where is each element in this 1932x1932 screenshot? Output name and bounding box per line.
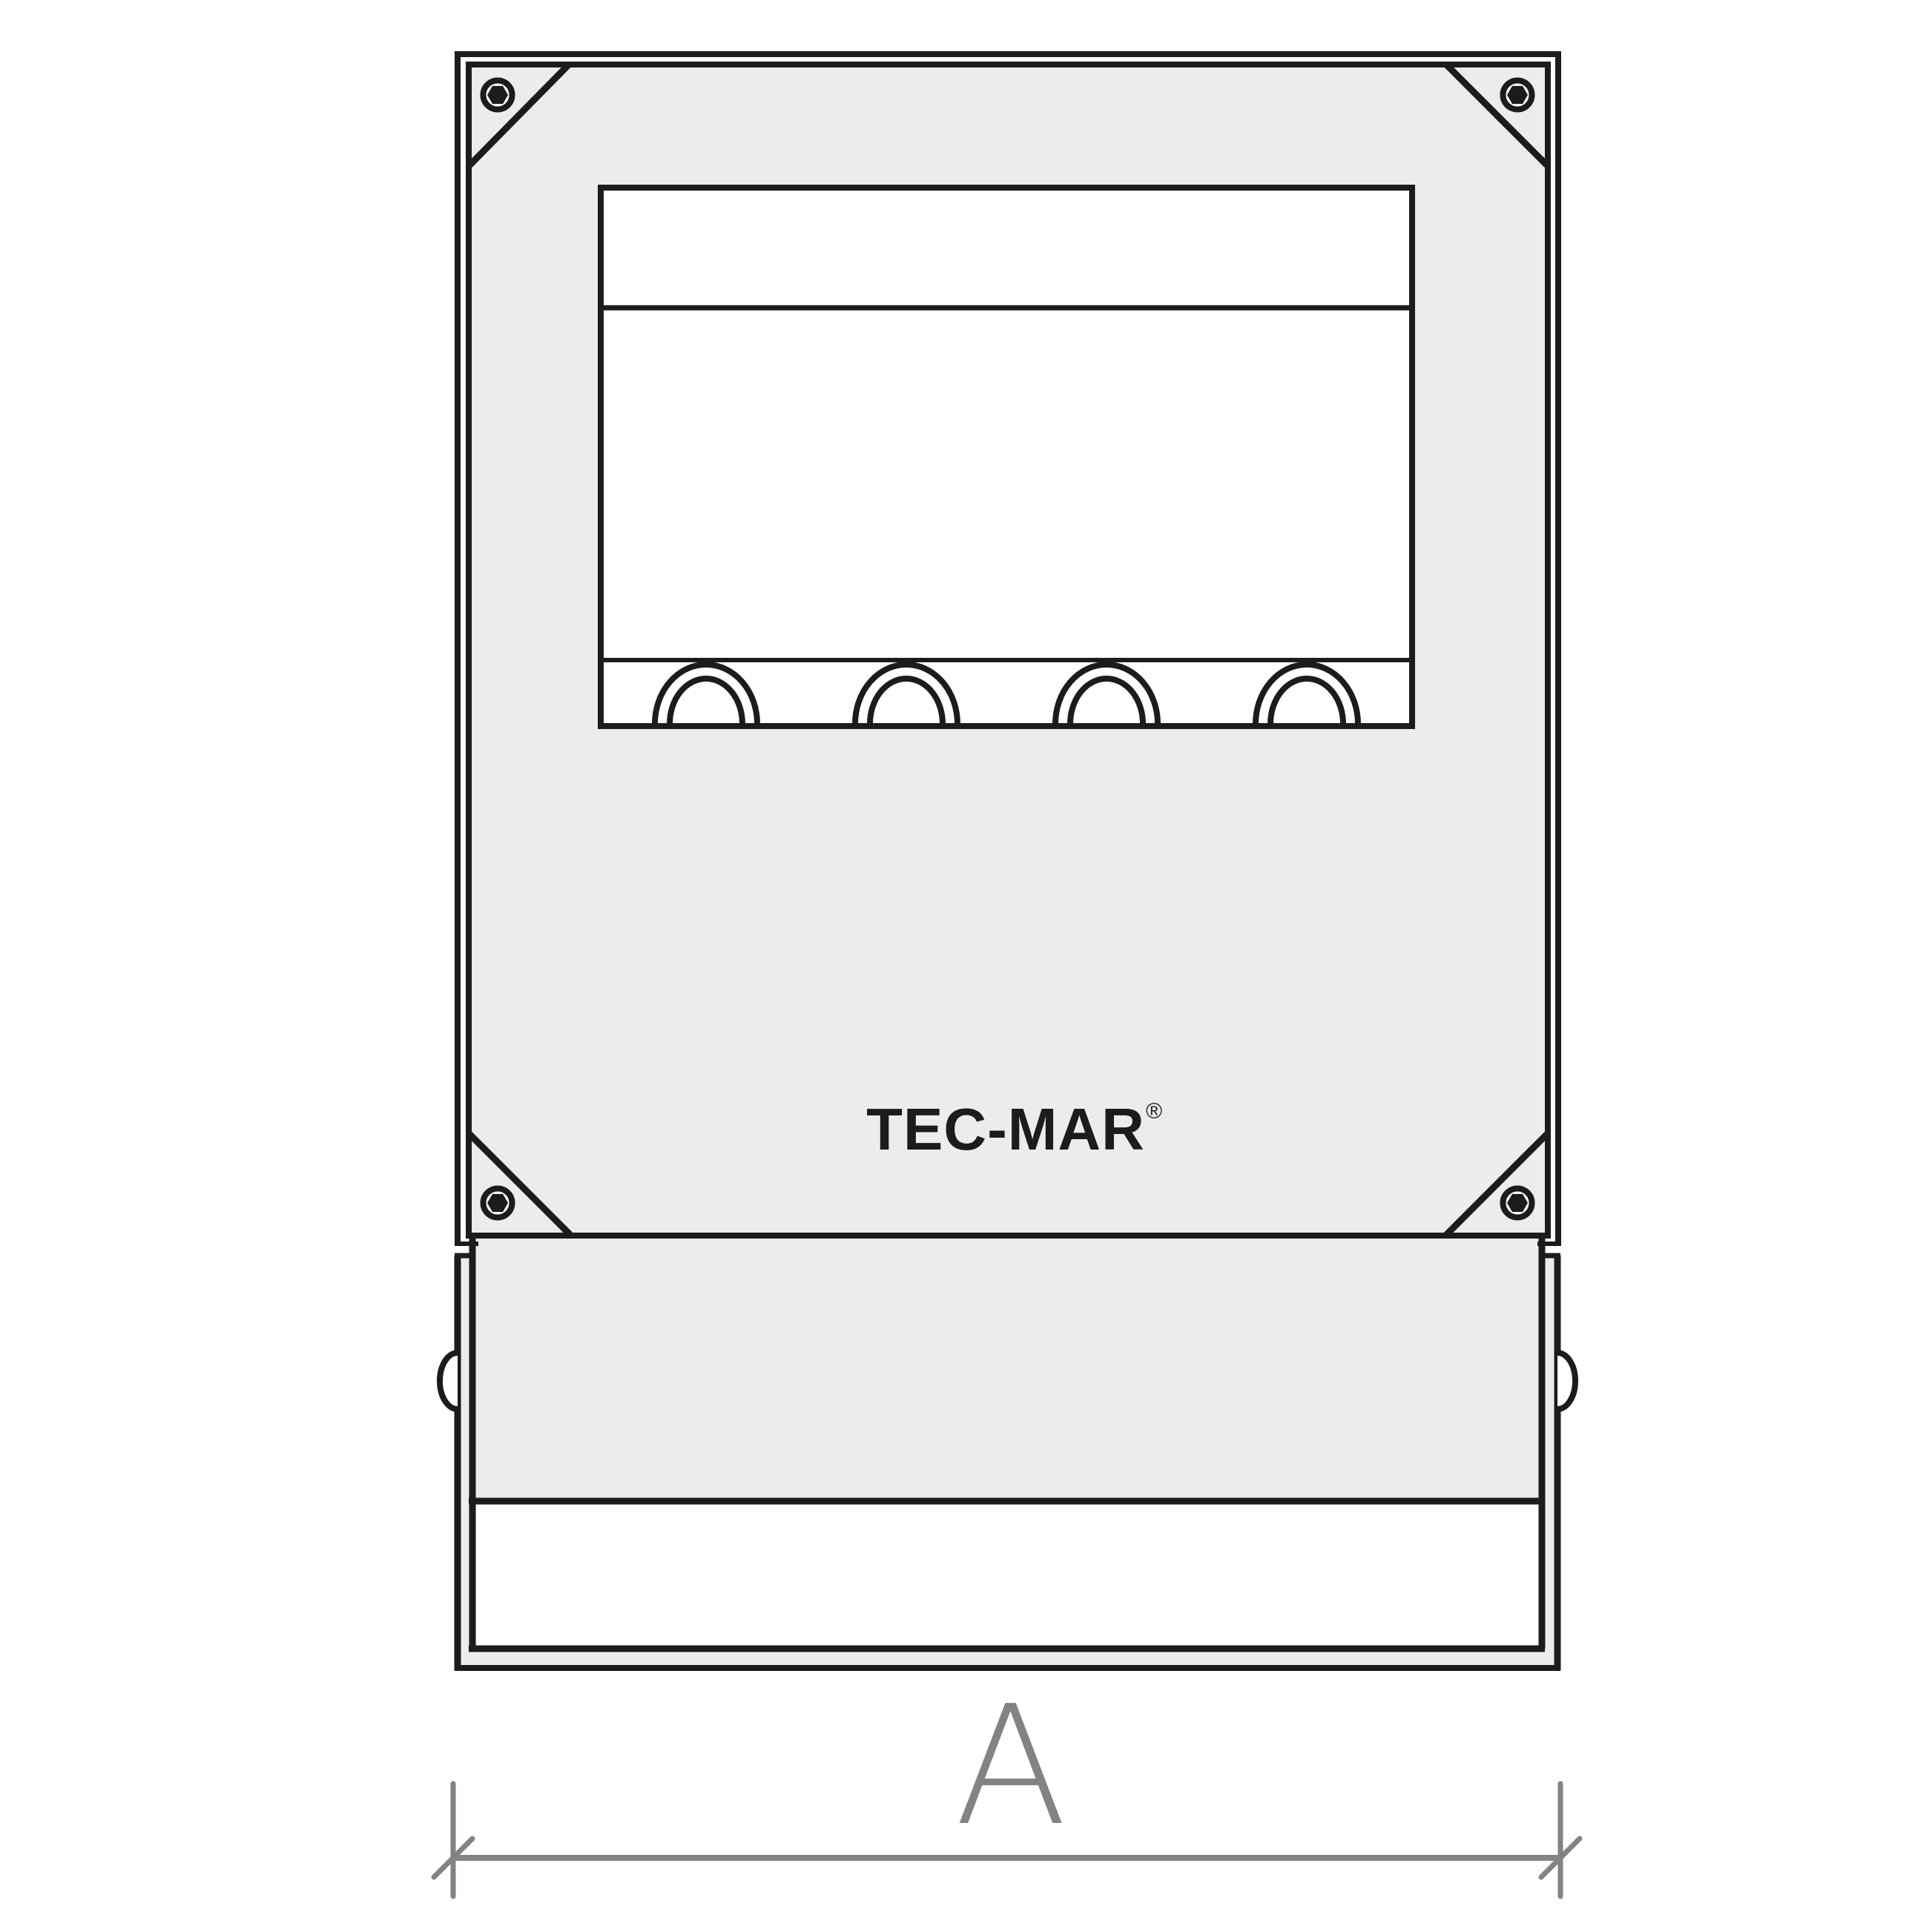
mounting-bracket bbox=[440, 1239, 1575, 1670]
technical-drawing-page: TEC-MAR ® A bbox=[0, 0, 1932, 1932]
dimension-label: A bbox=[955, 1671, 1067, 1862]
hex-screw-icon-top-left bbox=[484, 81, 512, 110]
brand: TEC-MAR ® bbox=[866, 1096, 1162, 1162]
hex-screw-icon-top-right bbox=[1503, 81, 1532, 110]
hex-screw-icon-bottom-right bbox=[1503, 1189, 1532, 1218]
bracket-bottom-strip bbox=[455, 1652, 1560, 1665]
hex-screw-icon-bottom-left bbox=[484, 1189, 512, 1218]
housing-white-band bbox=[476, 1505, 1539, 1646]
brand-logo: TEC-MAR bbox=[866, 1096, 1145, 1162]
dimension-annotation: A bbox=[434, 1671, 1580, 1896]
registered-trademark-mark: ® bbox=[1146, 1099, 1162, 1124]
pivot-knob-left bbox=[440, 1353, 458, 1409]
pivot-knob-right bbox=[1557, 1353, 1575, 1409]
window-frame bbox=[601, 188, 1412, 726]
floodlight-front-view-drawing: TEC-MAR ® A bbox=[0, 0, 1932, 1932]
gear-tray-window bbox=[601, 188, 1412, 726]
